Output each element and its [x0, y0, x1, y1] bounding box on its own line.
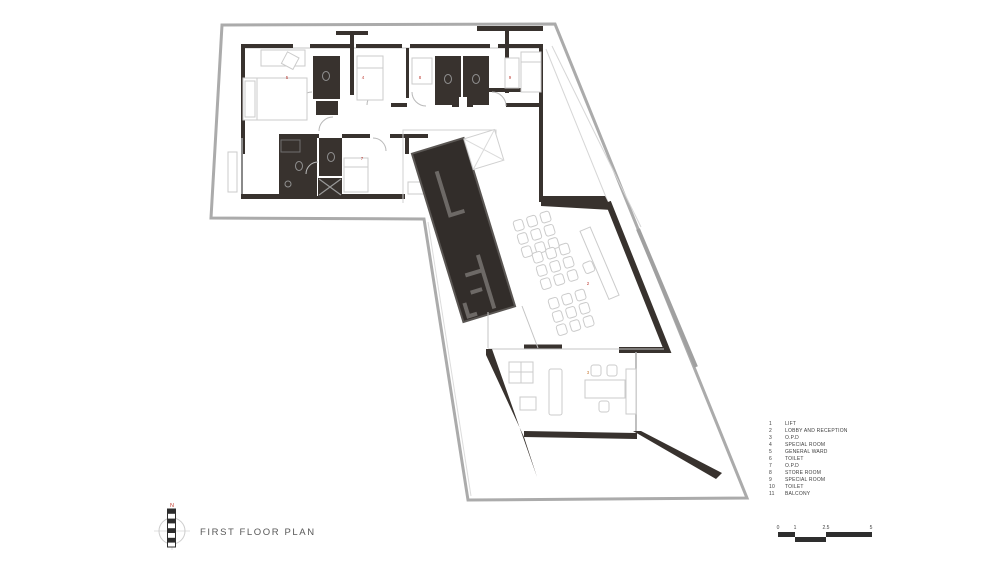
legend-item-label: STORE ROOM: [785, 470, 821, 477]
north-arrow-icon: N: [154, 503, 190, 550]
legend-item-label: TOILET: [785, 484, 804, 491]
legend-item: 11BALCONY: [769, 491, 848, 498]
legend-item-number: 4: [769, 442, 785, 449]
legend-item-label: O.P.D: [785, 435, 799, 442]
waiting-chair: [540, 277, 552, 290]
legend-item-number: 9: [769, 477, 785, 484]
scale-tick-label: 5: [870, 525, 873, 531]
waiting-chair: [578, 302, 590, 315]
opd-room: [486, 349, 722, 479]
waiting-chair: [574, 289, 586, 302]
legend-item: 9SPECIAL ROOM: [769, 477, 848, 484]
legend-item-label: TOILET: [785, 456, 804, 463]
waiting-chair: [526, 215, 538, 228]
legend-item-number: 5: [769, 449, 785, 456]
waiting-chair: [556, 323, 568, 336]
scale-bar: 012.55: [777, 525, 873, 542]
legend-item-number: 8: [769, 470, 785, 477]
waiting-chair: [548, 297, 560, 310]
legend-item-number: 3: [769, 435, 785, 442]
plan-title: FIRST FLOOR PLAN: [200, 527, 316, 538]
legend-item: 10TOILET: [769, 484, 848, 491]
north-label: N: [170, 503, 174, 509]
legend-item-number: 1: [769, 421, 785, 428]
legend-item: 1LIFT: [769, 421, 848, 428]
legend-item-number: 7: [769, 463, 785, 470]
waiting-chair: [513, 219, 525, 232]
waiting-chairs: [513, 211, 595, 336]
drawing-sheet: 5489723 N 012.55 1LIFT2LOBBY AND RECEPTI…: [0, 0, 1000, 562]
waiting-chair: [553, 273, 565, 286]
legend-item-number: 2: [769, 428, 785, 435]
waiting-chair: [530, 228, 542, 241]
waiting-chair: [561, 293, 573, 306]
waiting-chair: [565, 306, 577, 319]
waiting-chair: [566, 269, 578, 282]
legend-item: 2LOBBY AND RECEPTION: [769, 428, 848, 435]
legend-item-label: GENERAL WARD: [785, 449, 828, 456]
waiting-chair: [536, 264, 548, 277]
scale-tick-label: 0: [777, 525, 780, 531]
legend-item: 4SPECIAL ROOM: [769, 442, 848, 449]
waiting-chair: [552, 310, 564, 323]
legend-item-number: 10: [769, 484, 785, 491]
legend-item-label: SPECIAL ROOM: [785, 442, 825, 449]
legend-item: 5GENERAL WARD: [769, 449, 848, 456]
legend-item-label: SPECIAL ROOM: [785, 477, 825, 484]
legend-item-number: 11: [769, 491, 785, 498]
legend-item-label: BALCONY: [785, 491, 810, 498]
scale-tick-label: 2.5: [823, 525, 830, 531]
scale-tick-label: 1: [794, 525, 797, 531]
waiting-chair: [539, 211, 551, 224]
waiting-chair: [543, 224, 555, 237]
legend-item: 8STORE ROOM: [769, 470, 848, 477]
scale-labels: 012.55: [777, 525, 873, 531]
waiting-chair: [569, 319, 581, 332]
waiting-chair: [558, 243, 570, 256]
waiting-chair: [517, 232, 529, 245]
room-number: 2: [587, 281, 590, 286]
legend-item: 7O.P.D: [769, 463, 848, 470]
room-number: 3: [587, 370, 590, 375]
floor-plan-drawing: 5489723 N 012.55: [0, 0, 1000, 562]
legend-item-number: 6: [769, 456, 785, 463]
legend-item: 6TOILET: [769, 456, 848, 463]
waiting-chair: [582, 315, 594, 328]
opd-furniture: [509, 362, 636, 415]
lift-shaft: [318, 176, 342, 196]
waiting-chair: [549, 260, 561, 273]
stair-core-block: [412, 129, 546, 322]
ward-furniture: [228, 50, 541, 203]
legend: 1LIFT2LOBBY AND RECEPTION3O.P.D4SPECIAL …: [769, 421, 848, 498]
waiting-chair: [562, 256, 574, 269]
legend-item-label: O.P.D: [785, 463, 799, 470]
legend-item-label: LOBBY AND RECEPTION: [785, 428, 848, 435]
legend-item: 3O.P.D: [769, 435, 848, 442]
legend-item-label: LIFT: [785, 421, 796, 428]
waiting-chair: [521, 245, 533, 258]
